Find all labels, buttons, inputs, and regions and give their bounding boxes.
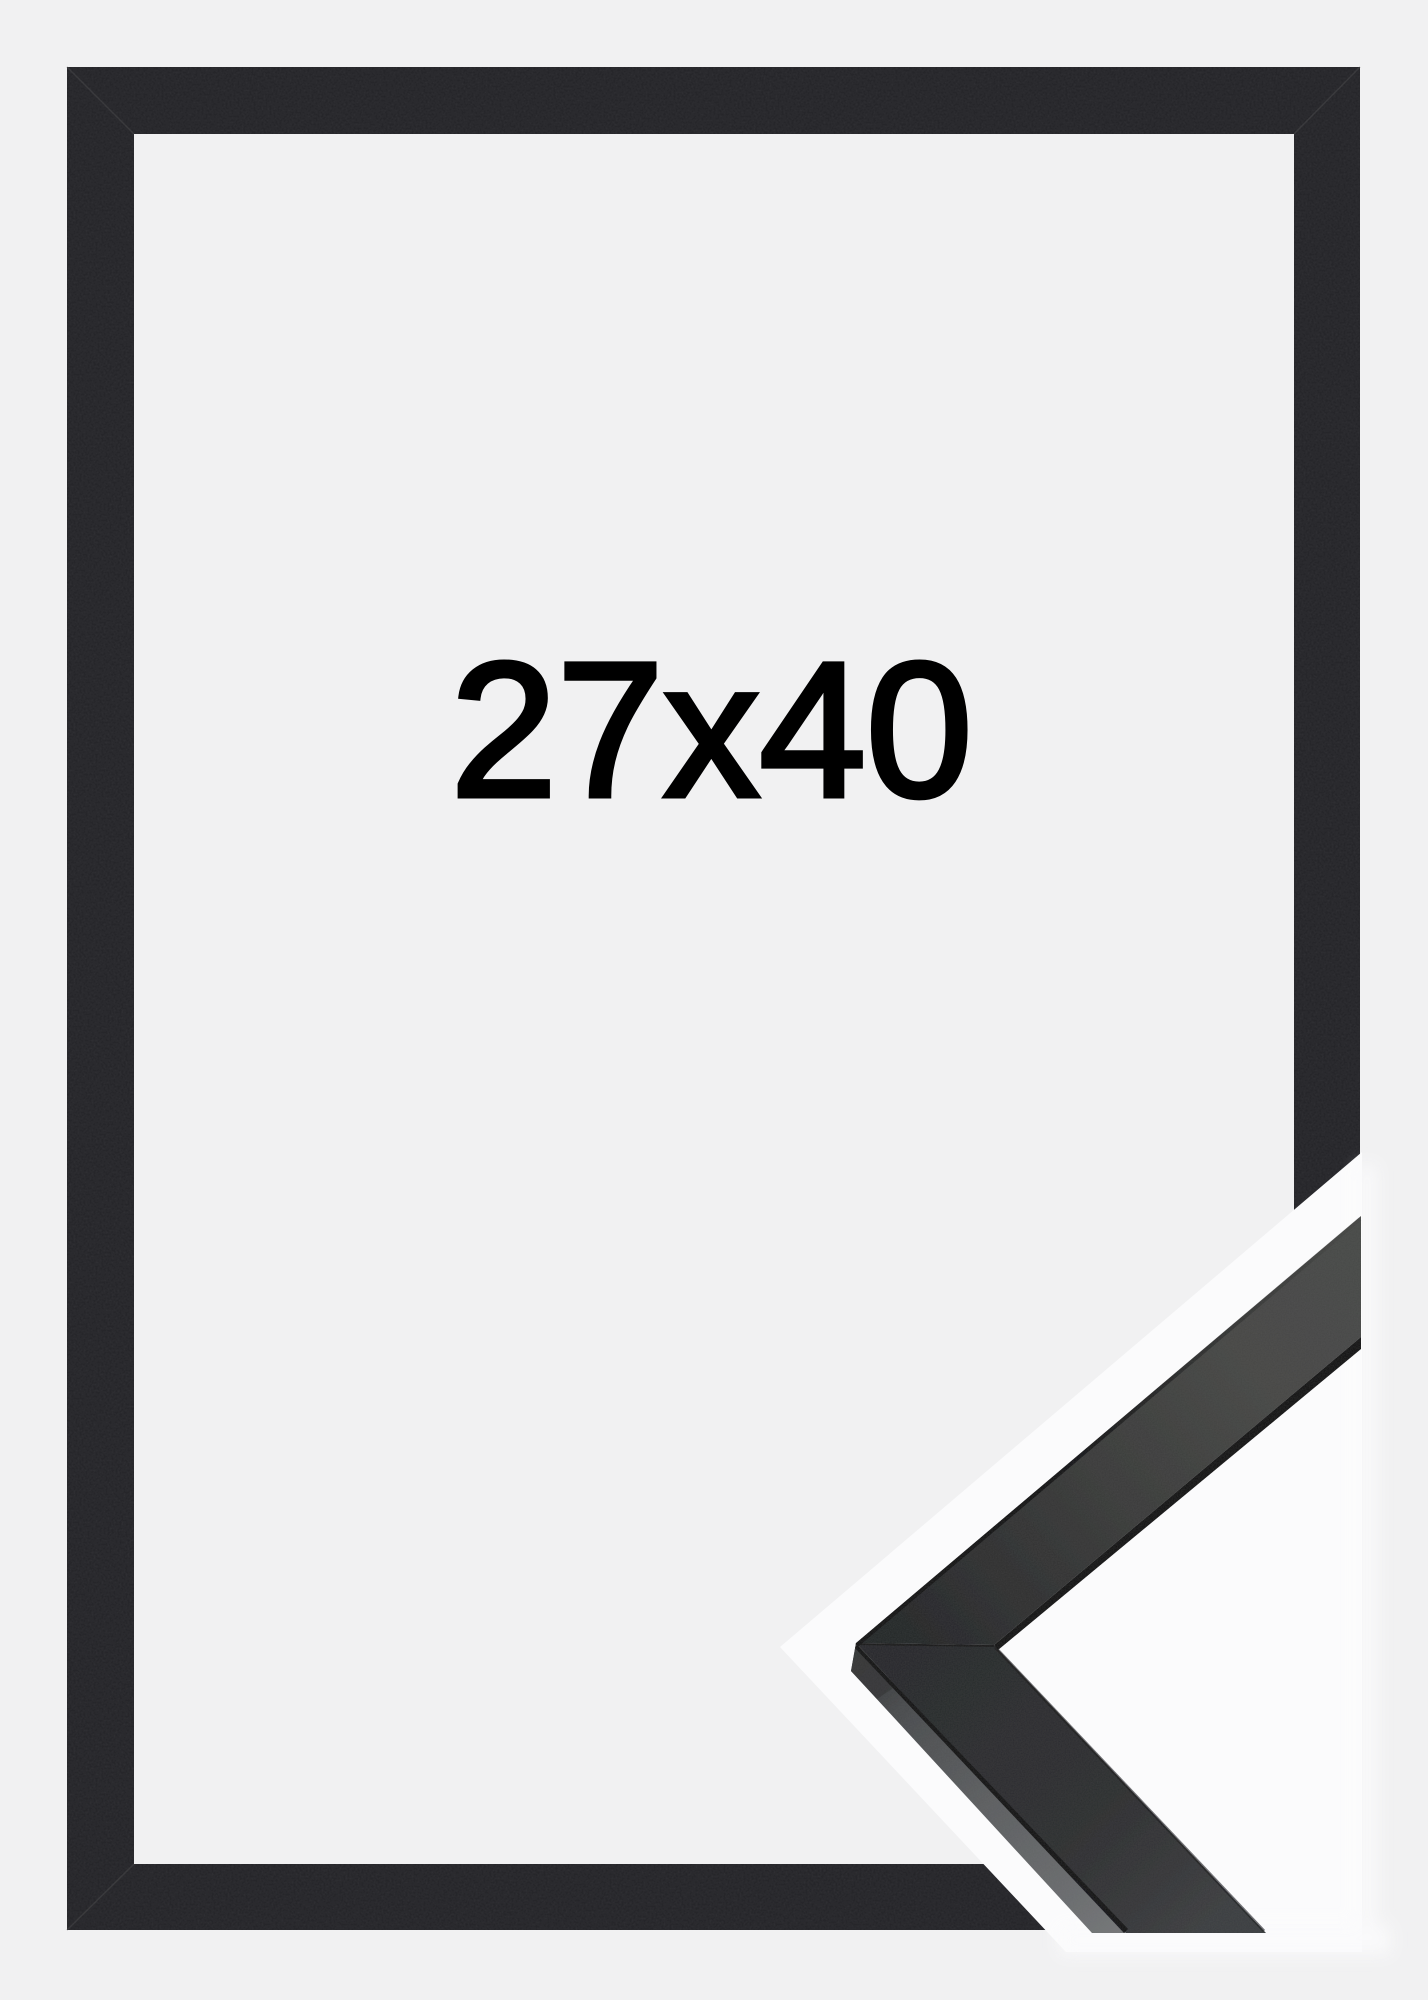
svg-text:27x40: 27x40 xyxy=(450,622,972,837)
